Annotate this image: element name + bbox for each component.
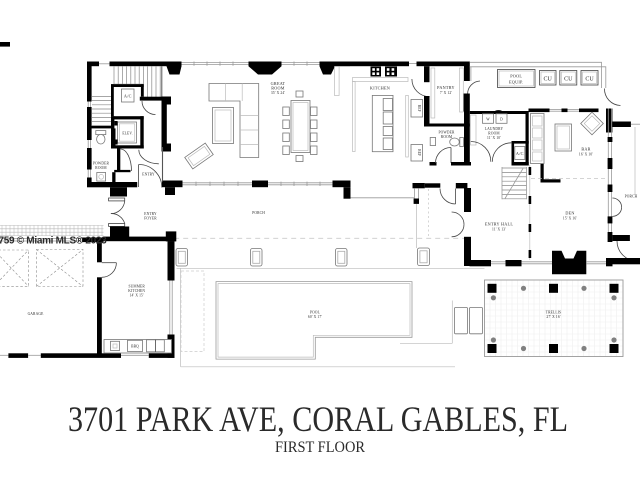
svg-text:BBQ: BBQ <box>131 345 139 349</box>
svg-text:ROOM: ROOM <box>441 135 453 139</box>
svg-text:ENTRY: ENTRY <box>142 173 155 177</box>
svg-text:ELEV.: ELEV. <box>122 132 132 136</box>
svg-text:3701 PARK AVE, CORAL GABLES, F: 3701 PARK AVE, CORAL GABLES, FL <box>68 399 568 439</box>
svg-text:TRELLIS: TRELLIS <box>546 311 561 315</box>
svg-text:LAUNDRY: LAUNDRY <box>485 127 504 131</box>
svg-text:11' X 13': 11' X 13' <box>492 228 506 232</box>
svg-text:DEN: DEN <box>565 211 574 216</box>
svg-text:ENTRY: ENTRY <box>144 212 157 216</box>
svg-text:CU: CU <box>564 77 573 83</box>
svg-text:A/C: A/C <box>516 151 524 156</box>
svg-text:POOL: POOL <box>510 74 522 79</box>
svg-text:ROOM: ROOM <box>271 86 285 91</box>
svg-text:D: D <box>500 118 503 122</box>
svg-text:ROOM: ROOM <box>488 131 500 135</box>
svg-text:PORCH: PORCH <box>625 195 638 199</box>
svg-text:POOL: POOL <box>310 311 320 315</box>
svg-text:PANTRY: PANTRY <box>437 85 455 90</box>
svg-text:SUMMER: SUMMER <box>128 285 145 289</box>
svg-text:11' X 10': 11' X 10' <box>487 136 501 140</box>
svg-text:GARAGE: GARAGE <box>28 312 45 316</box>
svg-text:CU: CU <box>585 77 594 83</box>
svg-text:60' X 17': 60' X 17' <box>308 315 322 319</box>
svg-text:15' X 16': 15' X 16' <box>563 217 577 221</box>
svg-text:KITCHEN: KITCHEN <box>370 86 390 91</box>
svg-text:EQUIP.: EQUIP. <box>509 80 523 85</box>
svg-text:14' X 15': 14' X 15' <box>130 294 144 298</box>
svg-text:REF: REF <box>417 149 421 156</box>
svg-text:27' X 16': 27' X 16' <box>546 315 560 319</box>
svg-text:PORCH: PORCH <box>252 211 265 215</box>
svg-text:A/C: A/C <box>124 94 132 99</box>
svg-text:POWDER: POWDER <box>93 162 110 166</box>
svg-text:7' X 12': 7' X 12' <box>440 91 452 95</box>
svg-text:FOYER: FOYER <box>144 217 157 221</box>
svg-text:35' X 24': 35' X 24' <box>271 91 285 95</box>
svg-text:REF: REF <box>417 105 421 112</box>
svg-text:W: W <box>486 118 490 122</box>
svg-text:CU: CU <box>544 77 553 83</box>
svg-text:KITCHEN: KITCHEN <box>128 289 145 293</box>
svg-text:BAR: BAR <box>581 147 590 152</box>
svg-text:ENTRY HALL: ENTRY HALL <box>485 222 513 227</box>
svg-text:ROOM: ROOM <box>95 166 107 170</box>
svg-text:FIRST FLOOR: FIRST FLOOR <box>275 439 366 456</box>
svg-text:759 © Miami MLS® 2023: 759 © Miami MLS® 2023 <box>0 236 107 247</box>
svg-text:16' X 10': 16' X 10' <box>579 152 593 156</box>
